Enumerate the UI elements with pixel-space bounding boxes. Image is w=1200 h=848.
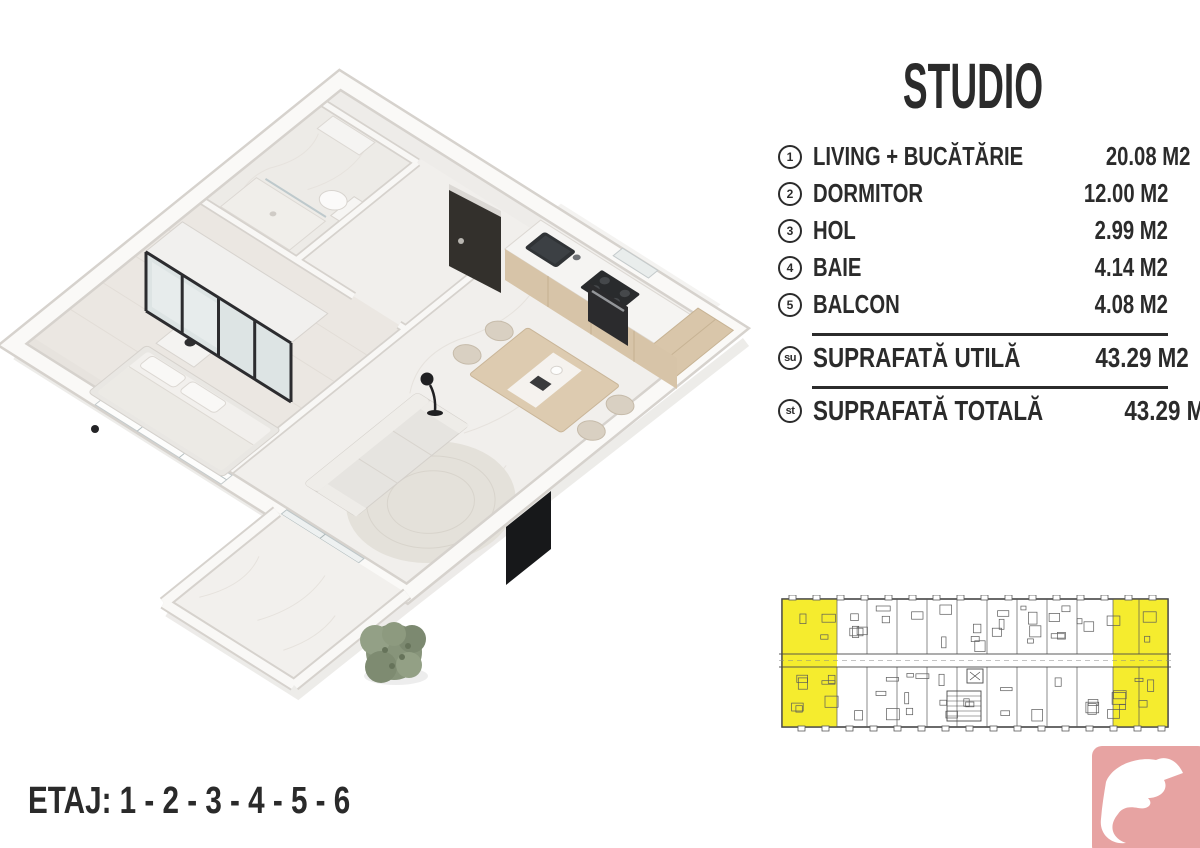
- room-area: 4.14 M2: [1095, 252, 1168, 283]
- room-row: 3 HOL 2.99 M2: [778, 212, 1168, 249]
- total-row: su SUPRAFATĂ UTILĂ 43.29 M2: [778, 336, 1168, 380]
- st-badge: st: [778, 399, 802, 423]
- page-title: STUDIO: [860, 54, 1086, 118]
- room-area: 20.08 M2: [1106, 141, 1191, 172]
- door-handle: [458, 238, 464, 244]
- room-row: 1 LIVING + BUCĂTĂRIE 20.08 M2: [778, 138, 1168, 175]
- highlighted-unit-right: [1113, 599, 1168, 727]
- room-area: 12.00 M2: [1083, 178, 1168, 209]
- room-area: 4.08 M2: [1095, 289, 1168, 320]
- room-number-badge: 3: [778, 219, 802, 243]
- room-label: LIVING + BUCĂTĂRIE: [813, 141, 1023, 172]
- total-label: SUPRAFATĂ UTILĂ: [813, 342, 1020, 374]
- floor-selector: ETAJ: 1 - 2 - 3 - 4 - 5 - 6: [28, 782, 350, 820]
- apartment-3d-floorplan: [0, 0, 770, 800]
- room-list: 1 LIVING + BUCĂTĂRIE 20.08 M2 2 DORMITOR…: [778, 138, 1168, 433]
- unit-layout-lines: [789, 595, 1165, 731]
- staircase: [947, 691, 981, 721]
- room-label: BAIE: [813, 252, 1017, 283]
- su-badge: su: [778, 346, 802, 370]
- brand-logo: [1092, 746, 1200, 848]
- room-label: HOL: [813, 215, 1017, 246]
- room-area: 2.99 M2: [1095, 215, 1168, 246]
- page: STUDIO 1 LIVING + BUCĂTĂRIE 20.08 M2 2 D…: [0, 0, 1200, 848]
- balcony-plant: [360, 622, 428, 685]
- room-number-badge: 2: [778, 182, 802, 206]
- highlighted-unit-left: [782, 599, 837, 727]
- room-row: 5 BALCON 4.08 M2: [778, 286, 1168, 323]
- room-number-badge: 5: [778, 293, 802, 317]
- total-label: SUPRAFATĂ TOTALĂ: [813, 395, 1043, 427]
- total-area: 43.29 M2: [1124, 395, 1200, 427]
- wall-lamp: [91, 425, 99, 433]
- room-number-badge: 4: [778, 256, 802, 280]
- building-level-plan: [779, 595, 1171, 735]
- room-label: BALCON: [813, 289, 1017, 320]
- total-area: 43.29 M2: [1096, 342, 1189, 374]
- room-row: 4 BAIE 4.14 M2: [778, 249, 1168, 286]
- room-number-badge: 1: [778, 145, 802, 169]
- room-label: DORMITOR: [813, 178, 1005, 209]
- total-row: st SUPRAFATĂ TOTALĂ 43.29 M2: [778, 389, 1168, 433]
- room-row: 2 DORMITOR 12.00 M2: [778, 175, 1168, 212]
